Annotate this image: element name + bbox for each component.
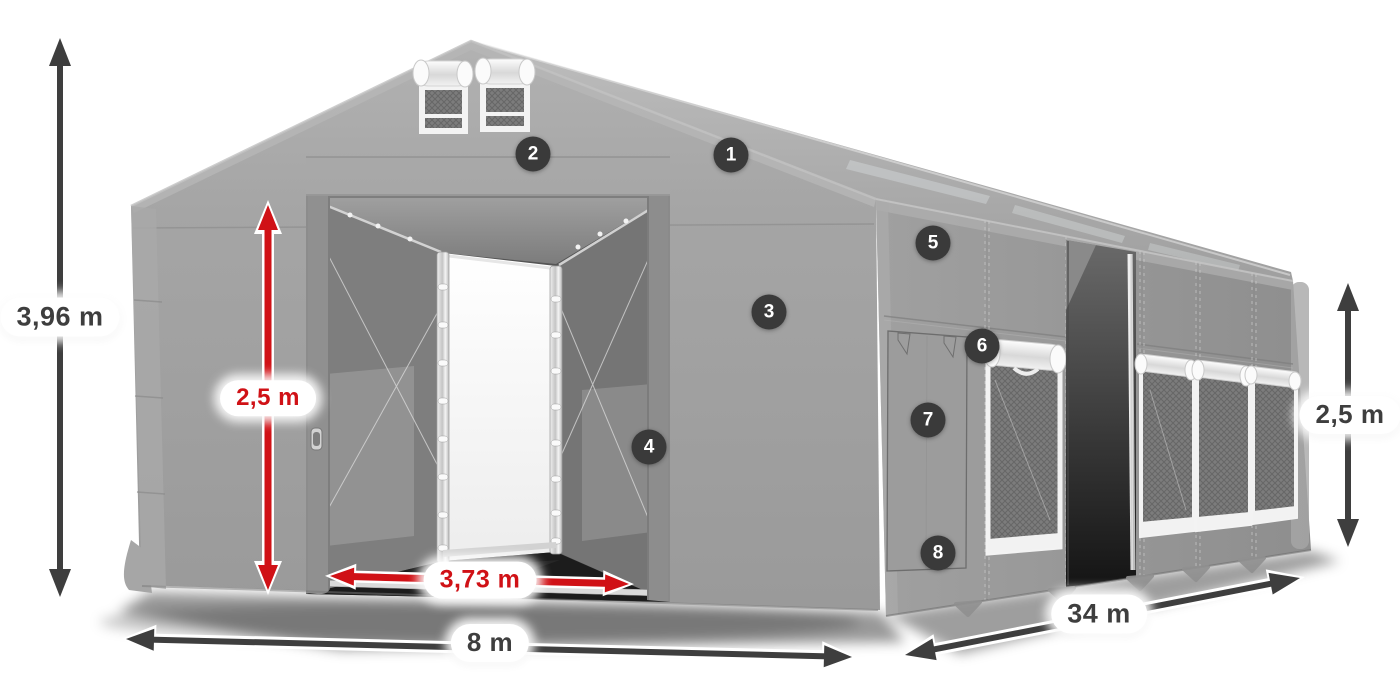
dim-label-length: 34 m <box>1051 594 1147 633</box>
side-window-4 <box>1245 366 1302 523</box>
side-door-flap <box>887 331 967 571</box>
entrance-right-column <box>647 196 670 602</box>
callout-marker-6: 6 <box>965 329 1000 364</box>
dim-label-entrance-width: 3,73 m <box>424 562 537 599</box>
tent-dimension-diagram: 3,96 m 2,5 m 3,73 m 8 m 34 m 2,5 m 1 2 3… <box>0 0 1400 700</box>
callout-marker-2: 2 <box>516 137 551 172</box>
side-window-3 <box>1192 360 1252 530</box>
side-doorway <box>1066 240 1136 588</box>
side-window-2 <box>1135 353 1197 536</box>
callout-marker-8: 8 <box>921 536 956 571</box>
callout-marker-1: 1 <box>714 138 749 173</box>
gable-vent-1 <box>413 60 473 131</box>
dim-label-entrance-height: 2,5 m <box>220 380 316 416</box>
dim-label-total-height: 3,96 m <box>0 297 119 336</box>
side-window-1 <box>984 339 1066 553</box>
dim-label-front-width: 8 m <box>451 624 529 662</box>
callout-marker-7: 7 <box>911 403 946 438</box>
callout-marker-4: 4 <box>632 430 667 465</box>
dim-label-side-height: 2,5 m <box>1300 396 1400 434</box>
tent-illustration <box>0 0 1400 700</box>
callout-marker-5: 5 <box>916 226 951 261</box>
gable-vent-2 <box>475 58 535 129</box>
callout-marker-3: 3 <box>752 295 787 330</box>
entrance-interior <box>306 196 670 602</box>
